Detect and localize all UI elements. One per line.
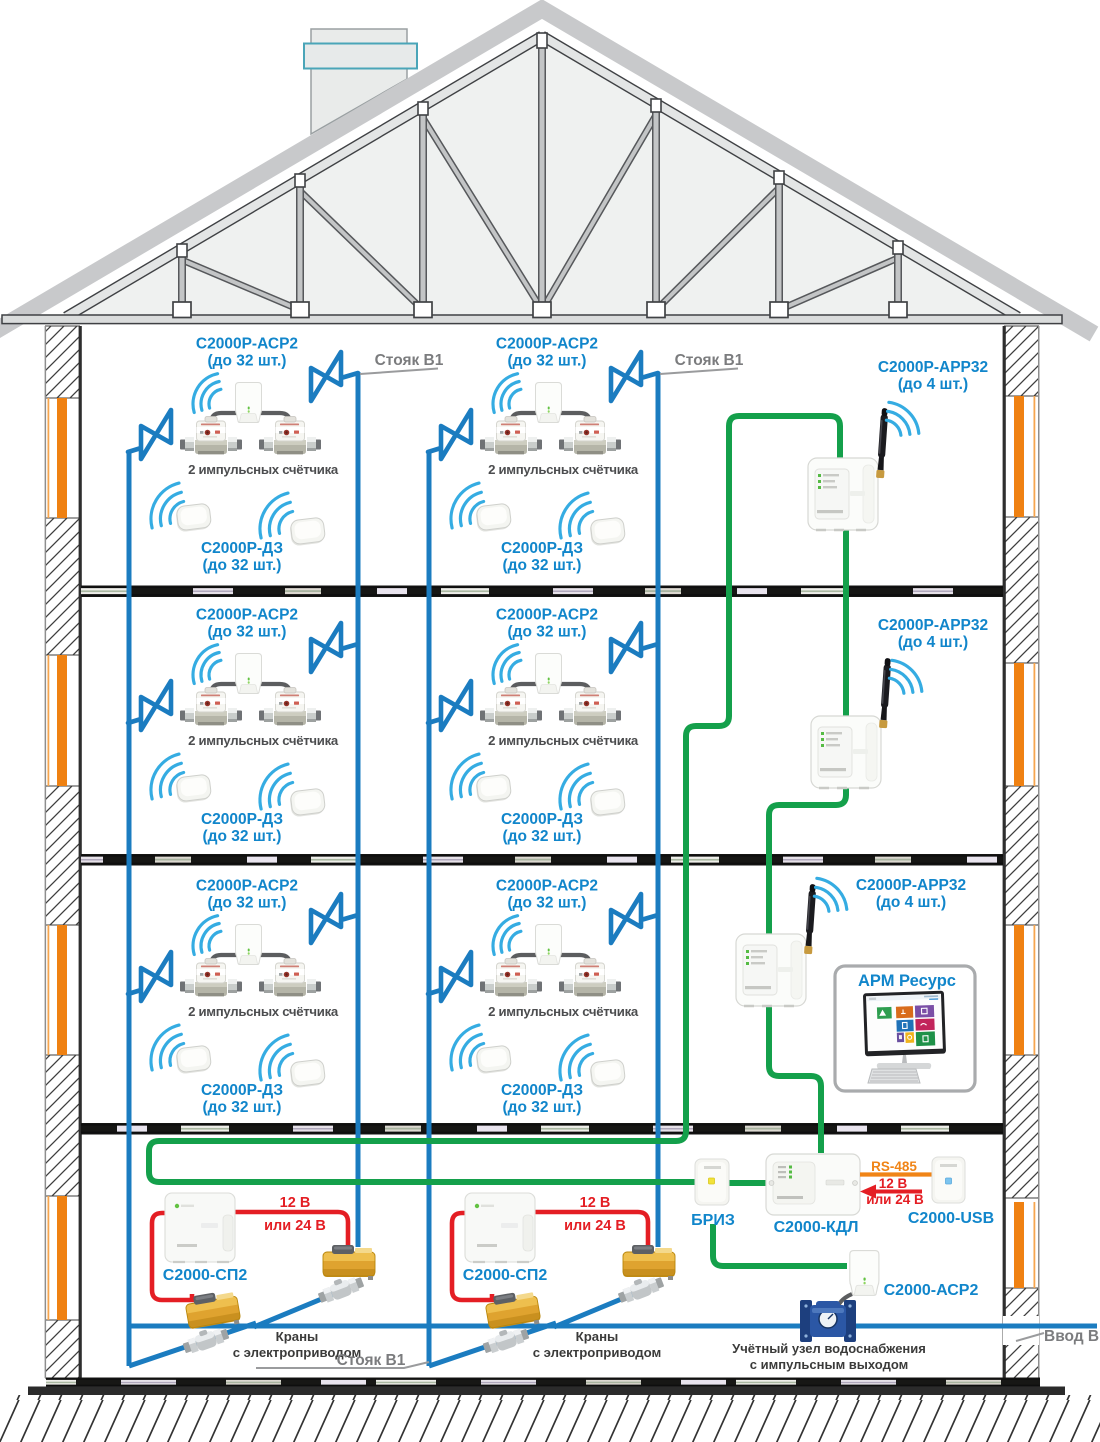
svg-text:Краны: Краны	[576, 1329, 619, 1344]
svg-text:или 24 В: или 24 В	[866, 1192, 924, 1207]
svg-text:АРМ Ресурс: АРМ Ресурс	[858, 972, 956, 990]
svg-text:с электроприводом: с электроприводом	[533, 1345, 662, 1360]
svg-text:С2000Р-АРР32: С2000Р-АРР32	[878, 617, 988, 634]
svg-text:С2000-СП2: С2000-СП2	[463, 1267, 548, 1284]
svg-text:Стояк В1: Стояк В1	[675, 352, 744, 369]
svg-text:с импульсным выходом: с импульсным выходом	[750, 1357, 908, 1372]
svg-text:С2000Р-АРР32: С2000Р-АРР32	[878, 359, 988, 376]
svg-text:2 импульсных счётчика: 2 импульсных счётчика	[188, 462, 339, 477]
svg-text:С2000Р-АРР32: С2000Р-АРР32	[856, 877, 966, 894]
svg-text:С2000-СП2: С2000-СП2	[163, 1267, 248, 1284]
svg-text:12 В: 12 В	[879, 1176, 908, 1191]
svg-text:Стояк В1: Стояк В1	[337, 1352, 406, 1369]
svg-text:или 24 В: или 24 В	[264, 1218, 326, 1234]
svg-text:Учётный узел водоснабжения: Учётный узел водоснабжения	[732, 1341, 926, 1356]
svg-text:Ввод В1: Ввод В1	[1044, 1328, 1100, 1345]
svg-text:(до 4 шт.): (до 4 шт.)	[898, 634, 968, 651]
svg-text:(до 4 шт.): (до 4 шт.)	[876, 894, 946, 911]
svg-text:С2000Р-ДЗ: С2000Р-ДЗ	[201, 540, 283, 557]
svg-text:12 В: 12 В	[280, 1195, 311, 1211]
svg-text:или 24 В: или 24 В	[564, 1218, 626, 1234]
svg-text:БРИЗ: БРИЗ	[691, 1212, 735, 1229]
svg-text:С2000-КДЛ: С2000-КДЛ	[774, 1219, 859, 1236]
svg-text:RS-485: RS-485	[871, 1159, 917, 1174]
svg-text:Стояк В1: Стояк В1	[375, 352, 444, 369]
svg-text:C2000-АСР2: C2000-АСР2	[884, 1282, 979, 1299]
svg-text:12 В: 12 В	[580, 1195, 611, 1211]
svg-text:(до 32 шт.): (до 32 шт.)	[203, 557, 282, 574]
svg-text:C2000-USB: C2000-USB	[908, 1210, 994, 1227]
svg-text:(до 4 шт.): (до 4 шт.)	[898, 376, 968, 393]
svg-text:(до 32 шт.): (до 32 шт.)	[208, 353, 287, 370]
svg-text:Краны: Краны	[276, 1329, 319, 1344]
svg-text:С2000Р-АСР2: С2000Р-АСР2	[196, 336, 298, 353]
